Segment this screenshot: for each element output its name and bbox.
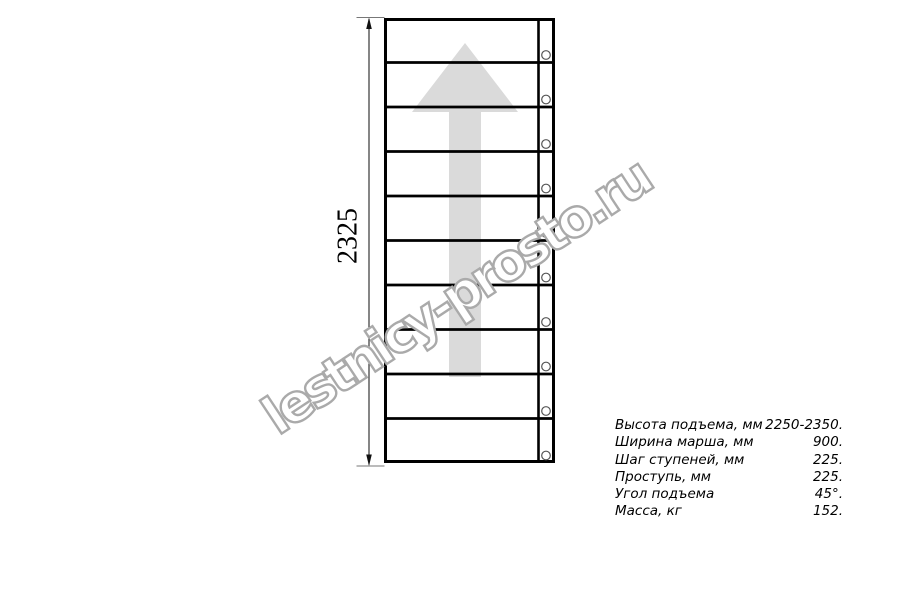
spec-label: Масса, кг [615, 503, 682, 520]
spec-label: Ширина марша, мм [615, 434, 754, 451]
stringer-hole [542, 407, 551, 416]
spec-label: Проступь, мм [615, 469, 711, 486]
spec-row-width: Ширина марша, мм 900. [615, 434, 843, 451]
stringer-hole [542, 51, 551, 60]
spec-value: 152. [813, 503, 843, 520]
spec-value: 225. [813, 452, 843, 469]
dimension-label: 2325 [332, 208, 363, 264]
spec-row-tread: Проступь, мм 225. [615, 469, 843, 486]
spec-value: 900. [813, 434, 843, 451]
dimension-arrow-down [366, 455, 372, 467]
spec-value: 225. [813, 469, 843, 486]
spec-row-step: Шаг ступеней, мм 225. [615, 452, 843, 469]
stringer-hole [542, 451, 551, 460]
stringer-hole [542, 318, 551, 327]
stringer-hole [542, 362, 551, 371]
spec-value: 45°. [815, 486, 843, 503]
stringer-hole [542, 95, 551, 104]
spec-value: 2250-2350. [765, 417, 843, 434]
spec-row-angle: Угол подъема 45°. [615, 486, 843, 503]
stringer-hole [542, 140, 551, 149]
spec-label: Угол подъема [615, 486, 714, 503]
specs-table: Высота подъема, мм 2250-2350. Ширина мар… [615, 417, 843, 521]
spec-label: Высота подъема, мм [615, 417, 763, 434]
stair-drawing-page: 2325 lestnicy-prosto.ru Высота подъема, … [0, 0, 900, 600]
dimension-arrow-up [366, 18, 372, 30]
spec-row-height: Высота подъема, мм 2250-2350. [615, 417, 843, 434]
stringer-hole [542, 184, 551, 193]
spec-label: Шаг ступеней, мм [615, 452, 744, 469]
spec-row-mass: Масса, кг 152. [615, 503, 843, 520]
